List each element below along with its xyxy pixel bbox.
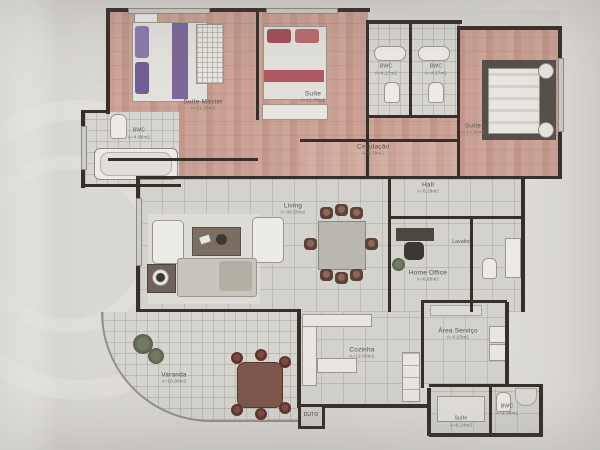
- wall: [300, 139, 460, 142]
- wall: [81, 184, 181, 187]
- room-label-bwc-1: BWCA=4,27m2: [375, 65, 397, 76]
- armchair: [252, 217, 284, 263]
- window: [558, 58, 564, 132]
- wall: [366, 20, 462, 24]
- wall: [539, 384, 543, 436]
- side-table-bowl: [152, 269, 169, 286]
- window: [266, 8, 338, 14]
- room-label-home-office: Home OfficeA=6,68m2: [409, 270, 447, 283]
- wall: [521, 178, 525, 312]
- service-bwc-shower: [515, 388, 537, 406]
- master-bed-pillow: [135, 62, 149, 94]
- room-label-bwc-master: BWCA=4,86m2: [128, 129, 150, 140]
- kitchen-counter-left: [302, 326, 317, 386]
- suite2-dresser: [262, 104, 328, 120]
- service-counter: [430, 305, 482, 316]
- balcony-chair: [255, 349, 267, 361]
- dining-chair: [335, 272, 348, 284]
- dining-chair: [335, 204, 348, 216]
- bwc2-counter: [418, 46, 450, 61]
- room-label-area-servico: Área ServiçoA=6,63m2: [438, 328, 478, 341]
- dining-chair: [320, 269, 333, 281]
- wall: [409, 24, 412, 117]
- washer: [489, 326, 506, 343]
- wall: [297, 309, 301, 408]
- suite3-stool: [538, 63, 554, 79]
- room-label-duto: DUTO: [304, 413, 319, 419]
- kitchen-island: [317, 358, 357, 373]
- wall: [457, 26, 460, 176]
- window: [128, 8, 210, 14]
- dining-chair: [320, 207, 333, 219]
- wall: [256, 10, 259, 120]
- wall: [429, 384, 541, 387]
- room-label-circulacao: CirculaçãoA=8,79m2: [357, 144, 390, 157]
- wall: [470, 218, 473, 312]
- balcony-chair: [279, 356, 291, 368]
- master-bed-runner: [172, 23, 188, 99]
- wall: [138, 176, 562, 179]
- bwc1-toilet: [384, 82, 400, 103]
- master-wardrobe: [196, 24, 224, 84]
- balcony-chair: [231, 404, 243, 416]
- wall: [427, 388, 431, 436]
- window: [81, 126, 87, 170]
- balcony-chair: [231, 352, 243, 364]
- room-label-lavabo: Lavabo: [452, 240, 470, 246]
- office-chair: [404, 242, 424, 260]
- dining-chair: [304, 238, 317, 250]
- room-label-suite-2: SuíteA=12,08m2: [301, 91, 326, 104]
- suite2-bed-pillow: [295, 29, 319, 43]
- balcony-chair: [255, 408, 267, 420]
- suite2-bed-pillow: [267, 29, 291, 43]
- bathtub-inner: [100, 152, 172, 176]
- lavabo-counter: [505, 238, 521, 278]
- suite2-bed-stripe: [264, 70, 324, 82]
- room-label-living: LivingA=36,55m2: [281, 203, 306, 216]
- kitchen-appliances: [402, 352, 420, 402]
- wall: [108, 158, 258, 161]
- wall: [429, 433, 543, 437]
- wall: [421, 300, 424, 388]
- room-label-bwc-2: BWCA=4,27m2: [425, 65, 447, 76]
- room-label-suite-3: SuíteA=14,96m2: [461, 123, 486, 136]
- window: [136, 198, 142, 266]
- room-label-cozinha: CozinhaA=12,08m2: [349, 347, 374, 360]
- wall: [458, 26, 562, 30]
- office-desk: [396, 228, 434, 241]
- dryer: [489, 344, 506, 361]
- dining-chair: [350, 207, 363, 219]
- bwc1-counter: [374, 46, 406, 61]
- wall: [81, 110, 110, 113]
- room-label-hall: HallA=8,29m2: [417, 182, 439, 195]
- balcony-table: [237, 362, 283, 408]
- wall: [388, 216, 524, 219]
- office-plant: [392, 258, 405, 271]
- lavabo-toilet: [482, 258, 497, 279]
- room-label-suite-master: Suíte MasterA=21,25m2: [183, 99, 222, 112]
- wall: [388, 179, 391, 312]
- bwc2-toilet: [428, 82, 444, 103]
- coffee-table-decor: [216, 234, 227, 245]
- suite3-stool: [538, 122, 554, 138]
- master-bed-pillow: [135, 26, 149, 58]
- sofa-cushion: [219, 261, 252, 291]
- wall: [136, 309, 300, 312]
- room-label-bwc-servico: BWCA=2,38m2: [496, 405, 518, 416]
- bwc-master-toilet: [110, 114, 127, 139]
- suite3-bed: [488, 68, 540, 134]
- dining-chair: [350, 269, 363, 281]
- wall: [489, 386, 492, 436]
- balcony-plant: [148, 348, 164, 364]
- wall: [106, 8, 110, 114]
- dining-chair: [365, 238, 378, 250]
- room-label-varanda: VarandaA=16,88m2: [161, 372, 187, 385]
- wall: [421, 300, 507, 303]
- wall: [505, 302, 509, 384]
- dining-table: [318, 221, 366, 270]
- balcony-chair: [279, 402, 291, 414]
- floor-plan-photo: Suíte MasterA=21,25m2 SuíteA=12,08m2 BWC…: [0, 0, 600, 450]
- room-label-suite-servico: SuíteA=6,14m2: [450, 417, 472, 428]
- wall: [366, 115, 458, 118]
